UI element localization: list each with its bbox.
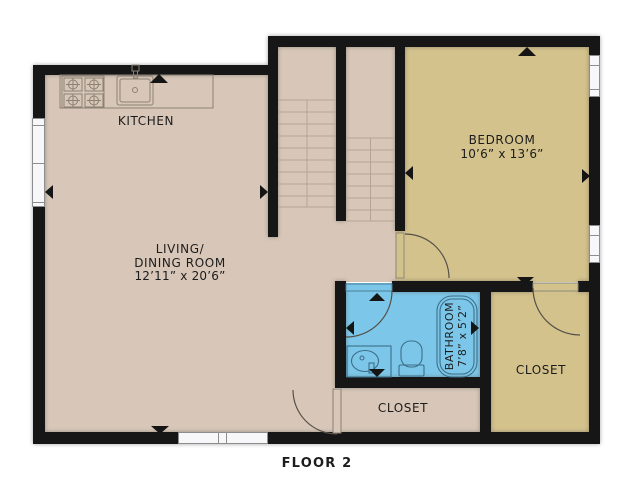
living-dim-arrow-left: [45, 185, 53, 199]
floor-plan: KITCHEN LIVING/ DINING ROOM 12’11” x 20’…: [0, 0, 640, 488]
bedroom-label: BEDROOM 10’6” x 13’6”: [427, 134, 577, 161]
kitchen-label: KITCHEN: [96, 115, 196, 129]
center-closet-door: [293, 389, 341, 434]
bedroom-dim-arrow-right: [582, 169, 590, 183]
living-dining-dimensions: 12’11” x 20’6”: [105, 270, 255, 284]
living-dining-label: LIVING/ DINING ROOM 12’11” x 20’6”: [105, 243, 255, 284]
bedroom-dim-arrow-left: [405, 166, 413, 180]
bathroom-label: BATHROOM 7’8” x 5’2”: [444, 286, 470, 386]
living-dim-arrow-down: [151, 426, 169, 434]
bathroom-sink: [347, 346, 391, 377]
bathroom-dim-arrow-left: [346, 321, 354, 335]
bedroom-dim-arrow-down: [517, 277, 534, 285]
bathroom-dimensions: 7’8” x 5’2”: [457, 286, 470, 386]
bedroom-dimensions: 10’6” x 13’6”: [427, 148, 577, 162]
closet-right-label: CLOSET: [491, 364, 591, 378]
living-dim-arrow-right: [260, 185, 268, 199]
bathroom-dim-arrow-up: [369, 293, 385, 301]
stove: [62, 76, 104, 108]
staircase-flight-east: [346, 138, 395, 221]
bathroom-label-text: BATHROOM: [444, 286, 457, 386]
toilet: [399, 341, 424, 376]
closet-center-label: CLOSET: [353, 402, 453, 416]
bedroom-door: [396, 233, 449, 278]
staircase-flight-west: [278, 100, 336, 207]
bedroom-dim-arrow-up: [518, 47, 536, 56]
floor-caption: FLOOR 2: [237, 457, 397, 471]
living-dining-label-line1: LIVING/: [105, 243, 255, 257]
right-closet-door: [533, 283, 580, 335]
kitchen-sink: [117, 65, 153, 105]
bathroom-dim-arrow-right: [471, 321, 479, 335]
fixtures-layer: [0, 0, 640, 488]
bedroom-label-text: BEDROOM: [427, 134, 577, 148]
living-dining-label-line2: DINING ROOM: [105, 257, 255, 271]
